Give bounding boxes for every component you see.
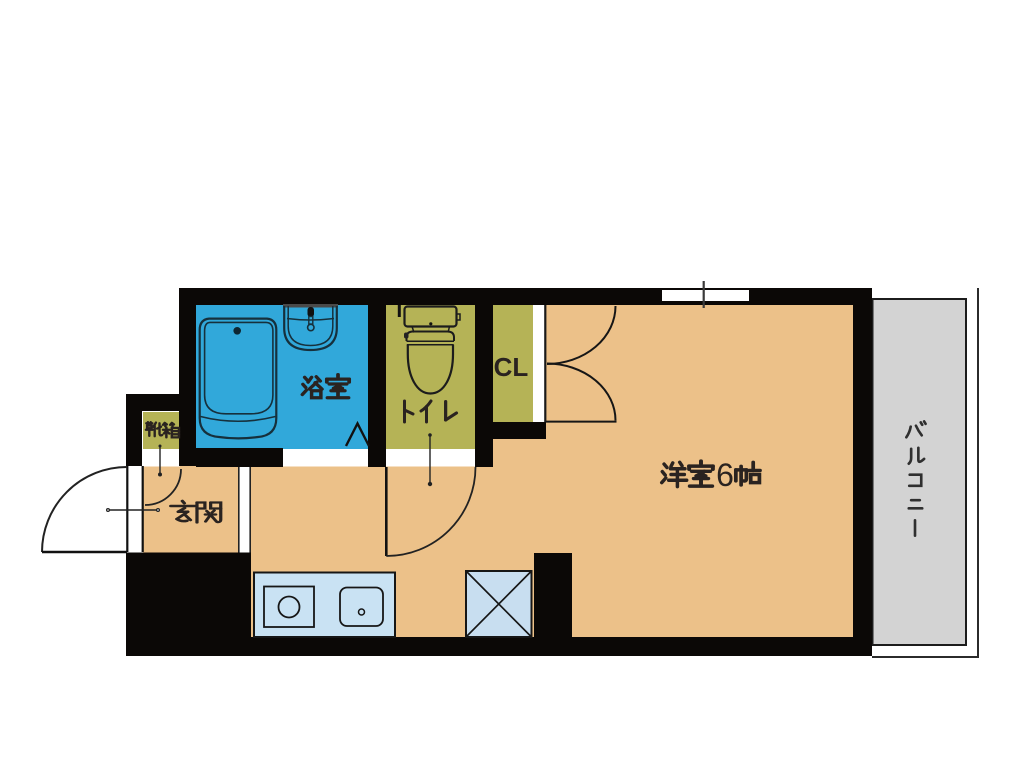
svg-text:6: 6 bbox=[716, 457, 734, 493]
svg-text:CL: CL bbox=[494, 352, 529, 382]
